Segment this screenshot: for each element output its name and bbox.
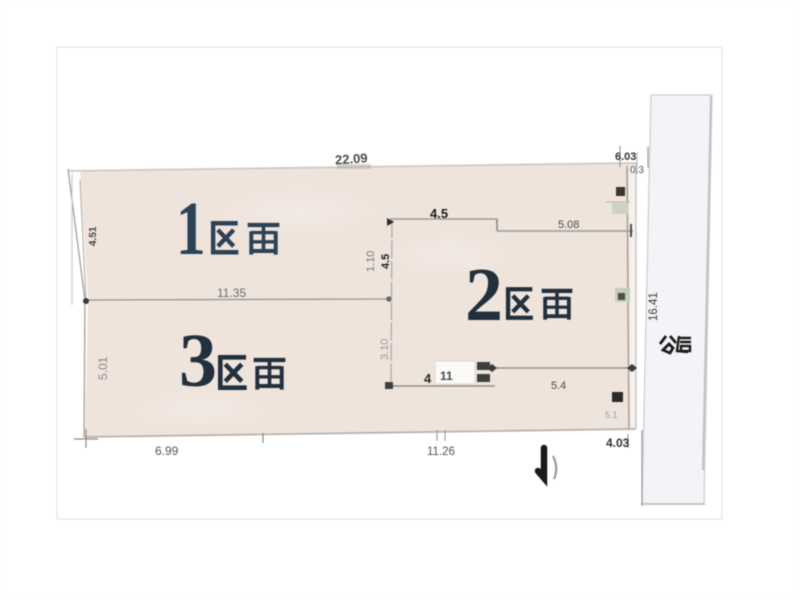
svg-text:11.35: 11.35 bbox=[217, 286, 246, 300]
svg-text:4: 4 bbox=[424, 371, 432, 386]
svg-text:1.10: 1.10 bbox=[365, 251, 377, 272]
svg-text:6.03: 6.03 bbox=[615, 151, 636, 163]
svg-text:4.5: 4.5 bbox=[380, 254, 392, 269]
svg-text:2: 2 bbox=[465, 253, 503, 337]
svg-text:0.3: 0.3 bbox=[630, 165, 644, 176]
svg-text:4.51: 4.51 bbox=[88, 226, 99, 246]
svg-text:3: 3 bbox=[179, 319, 217, 403]
svg-text:4.5: 4.5 bbox=[430, 206, 448, 221]
svg-text:6.99: 6.99 bbox=[155, 444, 179, 458]
svg-text:5.01: 5.01 bbox=[96, 356, 110, 380]
svg-text:5.1: 5.1 bbox=[605, 410, 618, 420]
svg-text:5.08: 5.08 bbox=[558, 219, 579, 231]
svg-text:5.4: 5.4 bbox=[551, 380, 566, 392]
svg-text:1: 1 bbox=[176, 186, 206, 271]
svg-text:11.26: 11.26 bbox=[427, 446, 455, 458]
svg-text:16.41: 16.41 bbox=[648, 292, 660, 321]
svg-text:3.10: 3.10 bbox=[379, 339, 391, 360]
svg-text:4.03: 4.03 bbox=[606, 436, 630, 450]
svg-text:11: 11 bbox=[440, 369, 453, 383]
